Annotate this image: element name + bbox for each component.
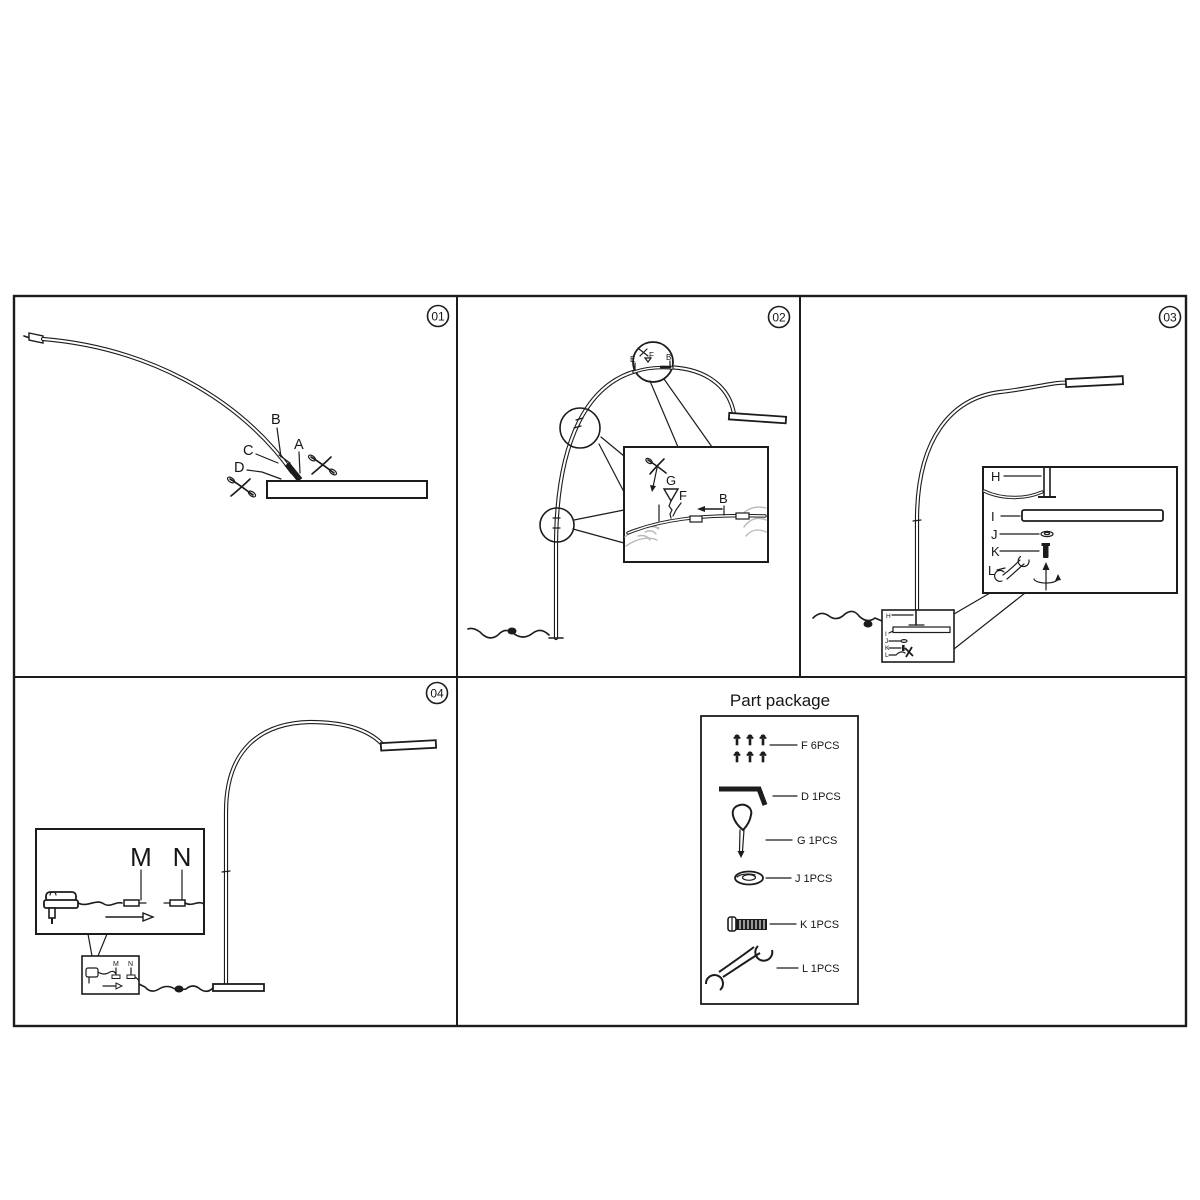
mini-bolt-icon [902,645,905,651]
label-d: D [234,460,244,476]
step-number: 02 [772,311,786,325]
plug-prong [49,908,55,918]
cord-switch [175,986,184,993]
instruction-sheet: 01 B A C D [0,0,1200,1200]
label-b: B [271,412,281,428]
label-c: C [243,443,253,459]
part-package-panel: Part package F 6PCS D 1PCS [701,691,858,1004]
mini-label-i: I [885,631,887,638]
mini-label-f: F [649,351,654,360]
label-h: H [991,469,1000,484]
mini-label-n: N [128,961,133,968]
mini-label-b: B [666,353,671,362]
label-i: I [991,509,995,524]
label-m: M [130,842,152,872]
diagram-canvas: 01 B A C D [0,0,1200,1200]
mini-label-l: L [885,652,889,659]
part-label-f: F 6PCS [801,740,840,752]
part-label-g: G 1PCS [797,835,837,847]
detail-inset-box: G F B [624,447,768,562]
cord-switch [508,628,517,635]
part-label-k: K 1PCS [800,919,839,931]
cord-switch [864,621,873,628]
step-number: 03 [1163,311,1177,325]
mini-callout-box: M N [82,956,139,994]
step-number: 04 [430,687,444,701]
bolt-icon [728,917,767,931]
mini-label-m: M [113,961,119,968]
part-package-box [701,716,858,1004]
base-bar-icon [1022,510,1163,521]
mini-label-h: H [886,613,891,620]
mini-label-j: J [885,638,888,645]
part-label-d: D 1PCS [801,791,841,803]
part-label-l: L 1PCS [802,963,840,975]
joint-sleeve [690,516,702,522]
label-f: F [679,488,687,503]
label-a: A [294,437,304,453]
part-label-j: J 1PCS [795,873,832,885]
step-number: 01 [431,310,445,324]
mini-callout-box: H I J K L [882,610,954,662]
mini-base-bar [893,627,950,633]
joint-sleeve [736,513,749,519]
detail-inset-box: H I J K [983,467,1177,593]
label-j: J [991,527,998,542]
detail-inset-box: M N [36,829,204,934]
lamp-head [381,740,436,750]
label-g: G [666,473,676,488]
washer-icon [735,872,763,885]
part-package-title: Part package [730,691,830,710]
label-b: B [719,491,728,506]
lamp-head [1066,376,1123,387]
label-k: K [991,544,1000,559]
label-n: N [173,842,192,872]
base-bar [213,984,264,991]
base-bar [267,481,427,498]
